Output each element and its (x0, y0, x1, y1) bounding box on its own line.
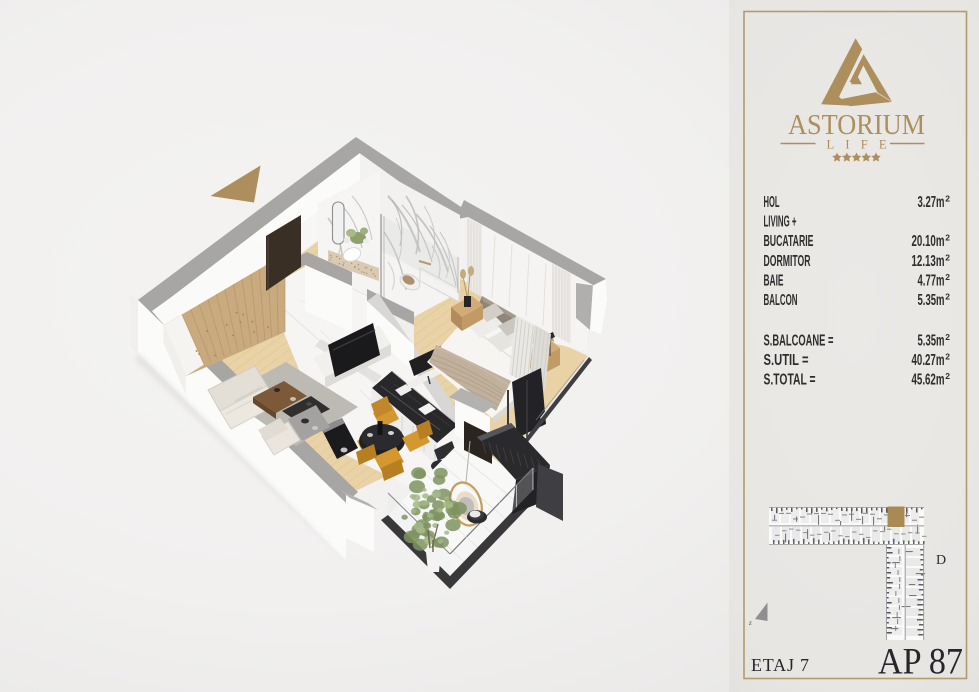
svg-text:20.10m: 20.10m (912, 233, 945, 250)
svg-text:LIVING +: LIVING + (764, 214, 797, 231)
svg-text:2: 2 (945, 352, 950, 362)
svg-text:2: 2 (945, 233, 950, 243)
svg-text:4.77m: 4.77m (918, 272, 945, 289)
svg-text:3.27m: 3.27m (918, 194, 945, 211)
svg-text:BAIE: BAIE (764, 272, 784, 289)
svg-text:2: 2 (945, 371, 950, 381)
svg-text:2: 2 (945, 292, 950, 302)
svg-text:AP 87: AP 87 (878, 642, 963, 683)
svg-text:S.UTIL =: S.UTIL = (764, 352, 809, 369)
svg-text:D: D (936, 553, 946, 568)
svg-text:HOL: HOL (764, 194, 780, 211)
svg-text:5.35m: 5.35m (918, 333, 945, 350)
svg-text:45.62m: 45.62m (912, 372, 945, 389)
svg-text:5.35m: 5.35m (918, 292, 945, 309)
svg-text:12.13m: 12.13m (912, 253, 945, 270)
svg-text:S.TOTAL =: S.TOTAL = (764, 372, 816, 389)
svg-text:2: 2 (945, 332, 950, 342)
svg-text:2: 2 (945, 194, 950, 204)
svg-text:2: 2 (945, 252, 950, 262)
svg-text:DORMITOR: DORMITOR (764, 253, 811, 270)
svg-text:S.BALCOANE =: S.BALCOANE = (764, 333, 834, 350)
svg-text:ASTORIUM: ASTORIUM (788, 109, 925, 141)
svg-text:BALCON: BALCON (764, 292, 798, 309)
svg-text:40.27m: 40.27m (912, 352, 945, 369)
svg-text:BUCATARIE: BUCATARIE (764, 233, 814, 250)
svg-text:ETAJ 7: ETAJ 7 (751, 655, 810, 675)
svg-text:2: 2 (945, 272, 950, 282)
svg-text:z: z (748, 619, 752, 627)
